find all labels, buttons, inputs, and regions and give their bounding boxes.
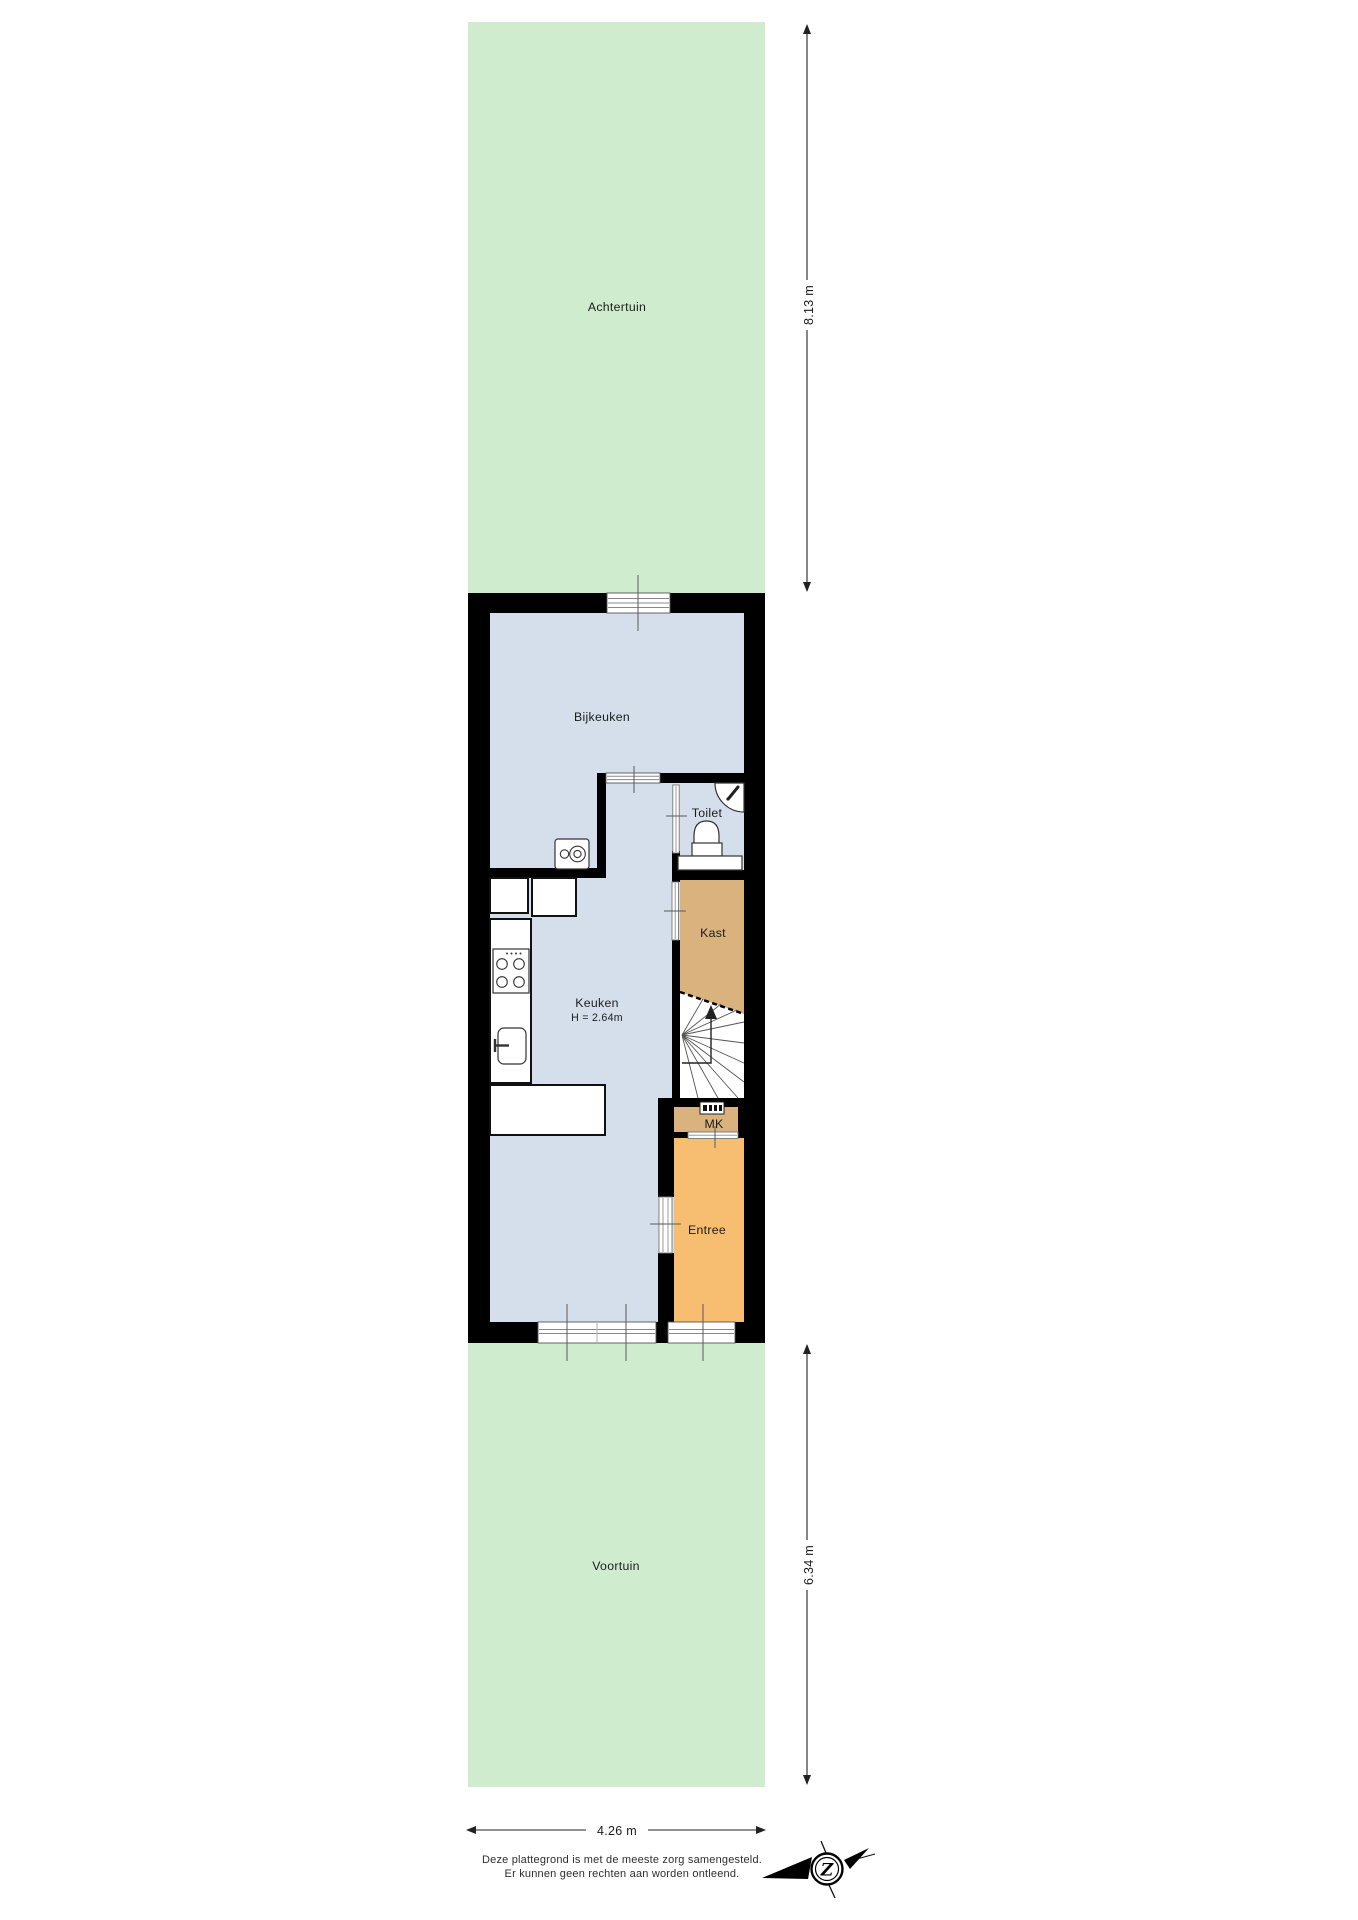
- floorplan-drawing: Z: [0, 0, 1358, 1920]
- room-label-entree: Entree: [688, 1223, 726, 1237]
- room-label-keuken-height: H = 2.64m: [571, 1012, 623, 1024]
- wall-bottom-c: [735, 1322, 744, 1343]
- stove-icon: [493, 949, 529, 993]
- wall-bijkeuken-bottom: [490, 868, 606, 878]
- wall-bijkeuken-right: [597, 773, 606, 878]
- wall-toilet-top: [660, 773, 744, 783]
- room-label-achtertuin: Achtertuin: [588, 300, 646, 314]
- toilet-counter: [678, 856, 742, 870]
- room-label-keuken: Keuken: [575, 996, 619, 1010]
- room-label-mk: MK: [704, 1117, 723, 1131]
- wall-entree-left-a: [658, 1107, 674, 1197]
- interior-window: [606, 773, 660, 783]
- front-door: [668, 1322, 735, 1343]
- cabinet-icon: [490, 878, 528, 913]
- compass-icon: Z: [762, 1841, 875, 1898]
- floorplan-page: Z Achtertuin Bijkeuken Toilet Kast Keuke…: [0, 0, 1358, 1920]
- wall-top-b: [670, 593, 744, 613]
- dim-label-achtertuin-depth: 8.13 m: [802, 285, 816, 325]
- kitchen-sink-icon: [494, 1028, 526, 1064]
- disclaimer-line-2: Er kunnen geen rechten aan worden ontlee…: [505, 1868, 740, 1880]
- wall-toilet-bottom: [672, 870, 744, 880]
- dim-label-voortuin-depth: 6.34 m: [802, 1545, 816, 1585]
- washer-icon: [555, 839, 589, 869]
- meter-box-icon: [700, 1102, 724, 1114]
- room-label-voortuin: Voortuin: [592, 1559, 640, 1573]
- wall-stairs-left: [672, 940, 680, 1098]
- wall-top-a: [490, 593, 607, 613]
- wall-entree-left-b: [658, 1253, 674, 1322]
- disclaimer-line-1: Deze plattegrond is met de meeste zorg s…: [482, 1854, 762, 1866]
- wall-bottom-a: [490, 1322, 538, 1343]
- wall-right-outer: [744, 593, 765, 1343]
- room-kast: [680, 880, 744, 1014]
- wall-bottom-b: [656, 1322, 668, 1343]
- entree-door: [659, 1197, 672, 1253]
- compass-south-label: Z: [820, 1861, 834, 1881]
- wall-left-outer: [468, 593, 490, 1343]
- kitchen-island: [490, 1085, 605, 1135]
- room-label-kast: Kast: [700, 926, 726, 940]
- dim-label-plot-width: 4.26 m: [597, 1824, 637, 1838]
- room-label-toilet: Toilet: [692, 806, 723, 820]
- toilet-icon: [692, 821, 722, 856]
- room-label-bijkeuken: Bijkeuken: [574, 710, 630, 724]
- cabinet-icon: [532, 878, 576, 916]
